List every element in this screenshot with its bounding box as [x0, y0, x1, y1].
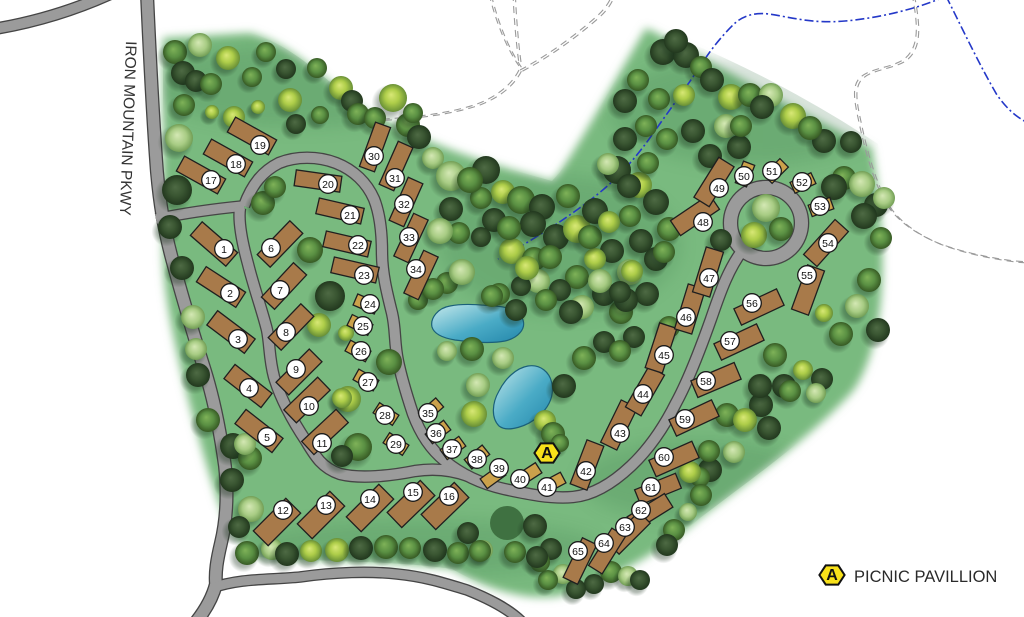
svg-text:1: 1	[221, 244, 227, 256]
svg-text:22: 22	[352, 240, 364, 252]
svg-text:65: 65	[572, 546, 584, 558]
svg-text:11: 11	[317, 438, 328, 450]
svg-text:A: A	[541, 445, 553, 462]
svg-text:54: 54	[822, 238, 834, 250]
svg-text:26: 26	[355, 346, 367, 358]
svg-text:38: 38	[471, 454, 483, 466]
svg-text:59: 59	[679, 414, 691, 426]
svg-text:45: 45	[658, 350, 670, 362]
svg-text:15: 15	[407, 487, 419, 499]
svg-text:36: 36	[430, 428, 442, 440]
svg-text:10: 10	[303, 401, 315, 413]
svg-text:25: 25	[357, 321, 369, 333]
svg-text:24: 24	[364, 299, 376, 311]
svg-text:20: 20	[322, 179, 334, 191]
svg-text:48: 48	[697, 217, 709, 229]
svg-text:31: 31	[389, 173, 401, 185]
svg-text:64: 64	[598, 538, 610, 550]
svg-text:37: 37	[446, 444, 458, 456]
svg-text:61: 61	[645, 482, 657, 494]
svg-text:35: 35	[422, 408, 434, 420]
svg-text:13: 13	[320, 500, 332, 512]
svg-text:51: 51	[766, 166, 778, 178]
svg-text:9: 9	[293, 364, 299, 376]
svg-text:46: 46	[680, 312, 692, 324]
svg-text:52: 52	[796, 177, 808, 189]
svg-text:27: 27	[362, 377, 374, 389]
svg-text:44: 44	[637, 389, 649, 401]
svg-text:23: 23	[358, 270, 370, 282]
svg-text:5: 5	[264, 432, 270, 444]
svg-text:18: 18	[230, 159, 242, 171]
svg-text:43: 43	[614, 428, 626, 440]
svg-text:62: 62	[635, 505, 647, 517]
svg-text:17: 17	[205, 175, 217, 187]
svg-text:56: 56	[746, 298, 758, 310]
svg-text:49: 49	[713, 183, 725, 195]
svg-text:PICNIC PAVILLION: PICNIC PAVILLION	[854, 568, 997, 586]
svg-text:7: 7	[277, 285, 283, 297]
svg-text:28: 28	[379, 410, 391, 422]
svg-text:42: 42	[580, 466, 592, 478]
svg-text:19: 19	[254, 140, 266, 152]
svg-text:33: 33	[403, 232, 415, 244]
svg-text:47: 47	[703, 273, 715, 285]
svg-text:A: A	[826, 567, 838, 584]
svg-text:16: 16	[443, 491, 455, 503]
svg-text:41: 41	[541, 482, 553, 494]
svg-text:29: 29	[390, 439, 402, 451]
svg-text:6: 6	[268, 243, 274, 255]
svg-text:63: 63	[619, 522, 631, 534]
svg-text:3: 3	[235, 334, 241, 346]
svg-text:58: 58	[700, 376, 712, 388]
svg-text:57: 57	[724, 336, 736, 348]
svg-text:14: 14	[364, 494, 376, 506]
svg-text:30: 30	[368, 151, 380, 163]
svg-text:55: 55	[801, 270, 813, 282]
svg-text:50: 50	[738, 171, 750, 183]
svg-text:21: 21	[344, 210, 356, 222]
svg-text:39: 39	[493, 463, 505, 475]
svg-text:8: 8	[283, 327, 289, 339]
svg-text:34: 34	[410, 264, 422, 276]
svg-text:4: 4	[246, 383, 252, 395]
svg-text:12: 12	[277, 505, 289, 517]
svg-text:60: 60	[658, 452, 670, 464]
svg-text:32: 32	[398, 199, 410, 211]
svg-text:2: 2	[227, 288, 233, 300]
svg-text:53: 53	[814, 201, 826, 213]
svg-text:40: 40	[514, 474, 526, 486]
